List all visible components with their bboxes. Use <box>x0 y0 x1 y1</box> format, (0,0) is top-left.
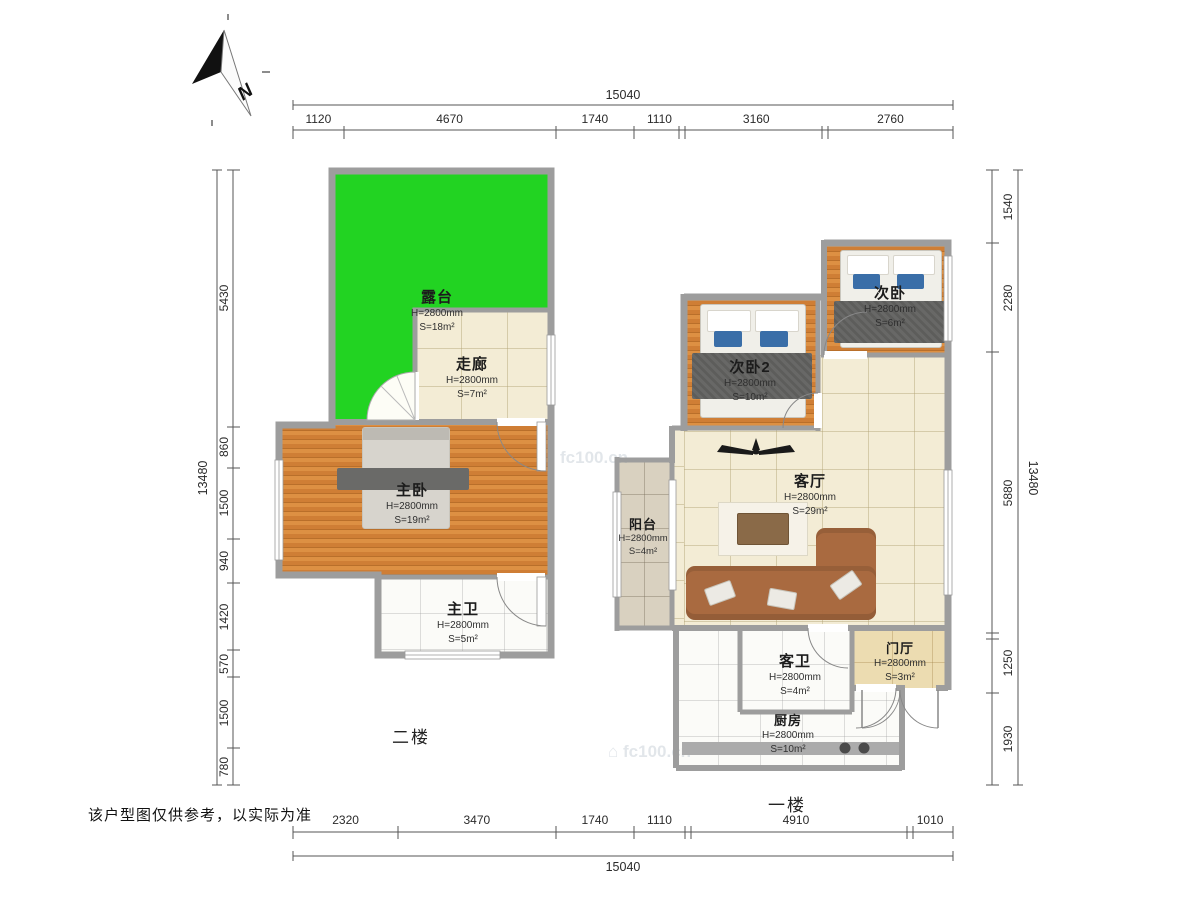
floor1-title: 一楼 <box>768 791 806 816</box>
watermark: ⌂ fc100.cn <box>608 742 691 762</box>
dim-label: 4670 <box>344 112 556 127</box>
floorplan-page: { "meta": { "floor2_label": "二楼", "floor… <box>0 0 1200 900</box>
compass-n-label: N <box>234 79 258 105</box>
dim-label: 2280 <box>998 244 1018 353</box>
label-guest-bath: 客卫 H=2800mm S=4m² <box>735 650 855 698</box>
dim-label: 1250 <box>998 633 1018 693</box>
dim-label: 3470 <box>398 813 555 828</box>
label-bedroom2: 次卧 H=2800mm S=6m² <box>830 282 950 330</box>
compass-north-icon <box>192 14 270 126</box>
dim-label: 1930 <box>998 693 1018 785</box>
watermark: ⌂ fc100.cn <box>545 448 628 468</box>
dim-label: 1110 <box>634 112 684 127</box>
label-corridor: 走廊 H=2800mm S=7m² <box>412 353 532 401</box>
label-balcony: 阳台 H=2800mm S=4m² <box>593 514 693 559</box>
label-bedroom3: 次卧2 H=2800mm S=10m² <box>690 356 810 404</box>
pillow <box>893 255 935 275</box>
dim-label: 3160 <box>685 112 828 127</box>
floor2-title: 二楼 <box>392 723 430 748</box>
dim-label: 1420 <box>214 583 234 650</box>
master-bed-headboard <box>363 428 449 440</box>
blue-cushion <box>760 331 788 347</box>
label-kitchen: 厨房 H=2800mm S=10m² <box>728 710 848 756</box>
dim-label: 780 <box>214 748 234 785</box>
disclaimer-note: 该户型图仅供参考，以实际为准 <box>88 804 312 825</box>
label-terrace: 露台 H=2800mm S=18m² <box>377 286 497 334</box>
dim-label: 5880 <box>998 352 1018 633</box>
blue-cushion <box>714 331 742 347</box>
dim-bottom-segments: 2320 3470 1740 1110 4910 1010 <box>293 813 953 828</box>
dim-bottom-total: 15040 <box>293 860 953 874</box>
pillow <box>755 310 799 332</box>
label-master-bedroom: 主卧 H=2800mm S=19m² <box>347 479 477 527</box>
dim-label: 1740 <box>555 813 634 828</box>
label-foyer: 门厅 H=2800mm S=3m² <box>845 638 955 684</box>
dim-right-total: 13480 <box>1024 170 1042 785</box>
dim-label: 1740 <box>555 112 634 127</box>
label-master-bath: 主卫 H=2800mm S=5m² <box>398 598 528 646</box>
pillow <box>847 255 889 275</box>
dim-label: 5430 <box>214 170 234 427</box>
dim-label: 570 <box>214 650 234 677</box>
label-living: 客厅 H=2800mm S=29m² <box>745 470 875 518</box>
dim-right-segments: 1540 2280 5880 1250 1930 <box>998 170 1018 785</box>
dim-label: 940 <box>214 539 234 583</box>
dim-top-segments: 1120 4670 1740 1110 3160 2760 <box>293 112 953 127</box>
dim-label: 1500 <box>214 468 234 539</box>
dim-label: 860 <box>214 427 234 468</box>
dim-label: 1500 <box>214 677 234 748</box>
dim-left-total: 13480 <box>194 170 212 785</box>
dim-label: 1120 <box>293 112 344 127</box>
dim-label: 2760 <box>828 112 953 127</box>
dim-label: 1110 <box>634 813 684 828</box>
dim-left-segments: 5430 860 1500 940 1420 570 1500 780 <box>214 170 234 785</box>
dim-label: 1010 <box>907 813 953 828</box>
pillow <box>707 310 751 332</box>
dim-top-total: 15040 <box>293 88 953 102</box>
dim-label: 1540 <box>998 170 1018 244</box>
